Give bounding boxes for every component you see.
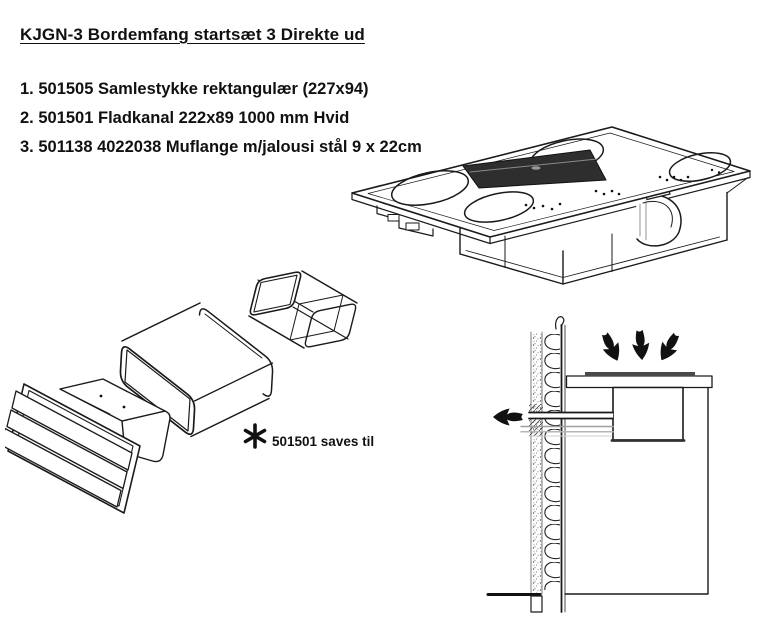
installation-drawing — [480, 300, 757, 617]
duct-kit-figure — [5, 262, 385, 534]
motor-box — [613, 388, 683, 441]
connector-piece — [249, 271, 357, 348]
wall-section — [529, 317, 565, 612]
note-text: 501501 saves til — [272, 434, 374, 449]
countertop — [567, 376, 713, 388]
cabinet-section — [565, 372, 712, 594]
duct-kit-drawing — [5, 262, 385, 534]
floor-line — [488, 595, 542, 613]
exhaust-out-arrow — [493, 409, 523, 426]
hob-strip — [585, 372, 695, 376]
installation-figure — [480, 300, 757, 617]
cooktop-figure — [345, 98, 757, 293]
page: KJGN-3 Bordemfang startsæt 3 Direkte ud … — [0, 0, 757, 617]
asterisk-icon — [242, 422, 268, 450]
page-title: KJGN-3 Bordemfang startsæt 3 Direkte ud — [20, 25, 365, 45]
cooktop-drawing — [345, 98, 757, 293]
